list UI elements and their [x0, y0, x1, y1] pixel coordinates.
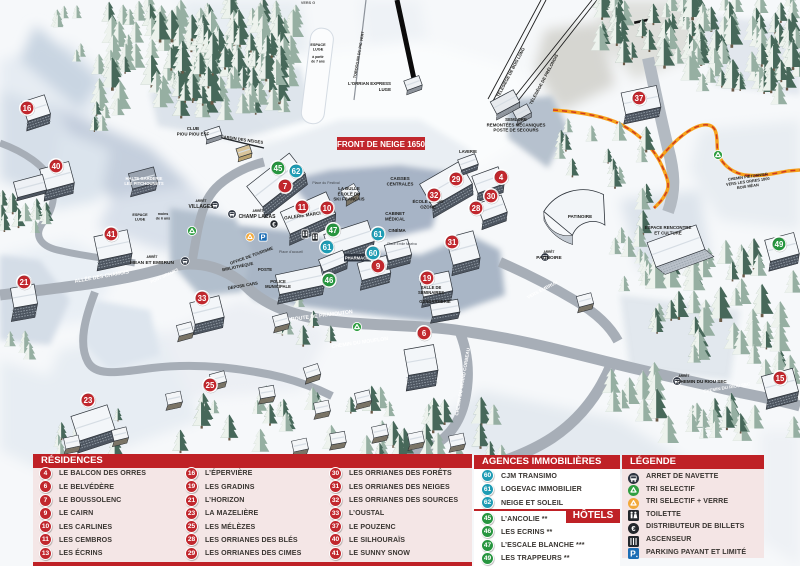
- svg-text:ARRÊT: ARRÊT: [196, 198, 207, 203]
- svg-text:SKI FRANÇAIS: SKI FRANÇAIS: [333, 197, 364, 202]
- svg-text:7: 7: [283, 182, 287, 191]
- svg-text:P: P: [260, 233, 265, 242]
- svg-text:de 6 ans: de 6 ans: [156, 217, 170, 221]
- svg-text:VILLAGES: VILLAGES: [188, 204, 214, 210]
- svg-text:SÉMINAIRES: SÉMINAIRES: [418, 290, 444, 295]
- svg-text:Place du Festival: Place du Festival: [312, 181, 340, 185]
- svg-text:CLUB: CLUB: [187, 126, 199, 131]
- svg-text:PATINOIRE: PATINOIRE: [536, 255, 562, 261]
- svg-text:45: 45: [274, 164, 283, 173]
- svg-text:LAVERIE: LAVERIE: [459, 149, 477, 154]
- svg-text:OZONE: OZONE: [420, 204, 436, 209]
- svg-text:ESPACE: ESPACE: [310, 43, 326, 47]
- svg-text:ARRÊT: ARRÊT: [544, 249, 555, 254]
- svg-text:62: 62: [292, 167, 301, 176]
- svg-text:POSTE DE SECOURS: POSTE DE SECOURS: [493, 128, 538, 133]
- svg-text:PATINOIRE: PATINOIRE: [568, 214, 592, 219]
- svg-text:ÉCOLE DU: ÉCOLE DU: [338, 191, 361, 196]
- svg-text:41: 41: [107, 230, 116, 239]
- svg-text:30: 30: [487, 192, 496, 201]
- svg-text:moins: moins: [158, 212, 169, 216]
- svg-text:LUGE: LUGE: [135, 218, 146, 222]
- svg-text:29: 29: [452, 175, 461, 184]
- svg-text:REMONTÉES MÉCANIQUES: REMONTÉES MÉCANIQUES: [487, 122, 546, 127]
- svg-text:P: P: [630, 548, 636, 558]
- svg-text:21: 21: [20, 278, 29, 287]
- svg-text:28: 28: [472, 204, 481, 213]
- svg-text:49: 49: [775, 240, 784, 249]
- svg-text:ARRÊT: ARRÊT: [147, 254, 158, 259]
- svg-text:16: 16: [23, 104, 32, 113]
- svg-text:CAISSES: CAISSES: [390, 176, 409, 181]
- svg-text:CHEMIN DU RIOU SEC: CHEMIN DU RIOU SEC: [677, 379, 727, 384]
- svg-text:MUNICIPALE: MUNICIPALE: [265, 284, 291, 289]
- svg-text:ET CULTURE: ET CULTURE: [654, 230, 682, 235]
- svg-text:15: 15: [776, 374, 785, 383]
- svg-text:MEAN ET EMBRUN: MEAN ET EMBRUN: [130, 260, 175, 266]
- svg-text:40: 40: [52, 162, 61, 171]
- svg-text:23: 23: [84, 396, 93, 405]
- svg-text:46: 46: [325, 276, 334, 285]
- svg-text:SEMLORE: SEMLORE: [505, 117, 527, 122]
- svg-text:32: 32: [430, 191, 439, 200]
- svg-text:LUGE: LUGE: [379, 87, 391, 92]
- svg-text:25: 25: [206, 381, 215, 390]
- svg-text:ESPACE: ESPACE: [132, 213, 148, 217]
- svg-text:ARRÊT: ARRÊT: [679, 373, 690, 378]
- svg-text:LES PITCHOUNETS: LES PITCHOUNETS: [124, 181, 164, 186]
- svg-text:47: 47: [329, 226, 338, 235]
- svg-text:11: 11: [298, 203, 307, 212]
- svg-text:60: 60: [369, 249, 378, 258]
- svg-text:37: 37: [635, 94, 644, 103]
- svg-text:19: 19: [423, 274, 432, 283]
- svg-text:31: 31: [448, 238, 457, 247]
- svg-text:CENTRALES: CENTRALES: [387, 181, 414, 186]
- svg-text:9: 9: [376, 262, 381, 271]
- svg-text:CINÉMA: CINÉMA: [388, 228, 406, 233]
- svg-text:4: 4: [499, 173, 504, 182]
- svg-text:33: 33: [198, 294, 207, 303]
- svg-text:ESPACE RENCONTRE: ESPACE RENCONTRE: [645, 225, 692, 230]
- svg-text:61: 61: [374, 230, 383, 239]
- svg-text:GENDARMERIE: GENDARMERIE: [419, 299, 451, 304]
- svg-text:PIOU PIOU ESF: PIOU PIOU ESF: [177, 131, 210, 136]
- svg-text:de 7 ans: de 7 ans: [311, 59, 325, 63]
- svg-text:FRONT DE NEIGE 1650: FRONT DE NEIGE 1650: [337, 140, 426, 149]
- svg-text:L’ORRIAN EXPRESS: L’ORRIAN EXPRESS: [348, 81, 391, 86]
- svg-text:POSTE: POSTE: [258, 267, 272, 272]
- svg-text:Place Émile Mselva: Place Émile Mselva: [387, 241, 417, 246]
- svg-text:6: 6: [422, 329, 427, 338]
- svg-text:ARRÊT: ARRÊT: [253, 208, 264, 213]
- svg-text:Place d’accueil: Place d’accueil: [279, 250, 303, 254]
- svg-text:CABINET: CABINET: [385, 211, 405, 216]
- svg-text:LA BULLE: LA BULLE: [338, 186, 360, 191]
- svg-text:€: €: [272, 221, 276, 228]
- svg-text:VERS G: VERS G: [301, 1, 315, 5]
- svg-text:CHAMP LACAS: CHAMP LACAS: [239, 214, 277, 220]
- svg-text:MÉDICAL: MÉDICAL: [385, 216, 405, 221]
- svg-text:61: 61: [323, 243, 332, 252]
- svg-text:10: 10: [323, 204, 332, 213]
- svg-text:LUGE: LUGE: [313, 48, 324, 52]
